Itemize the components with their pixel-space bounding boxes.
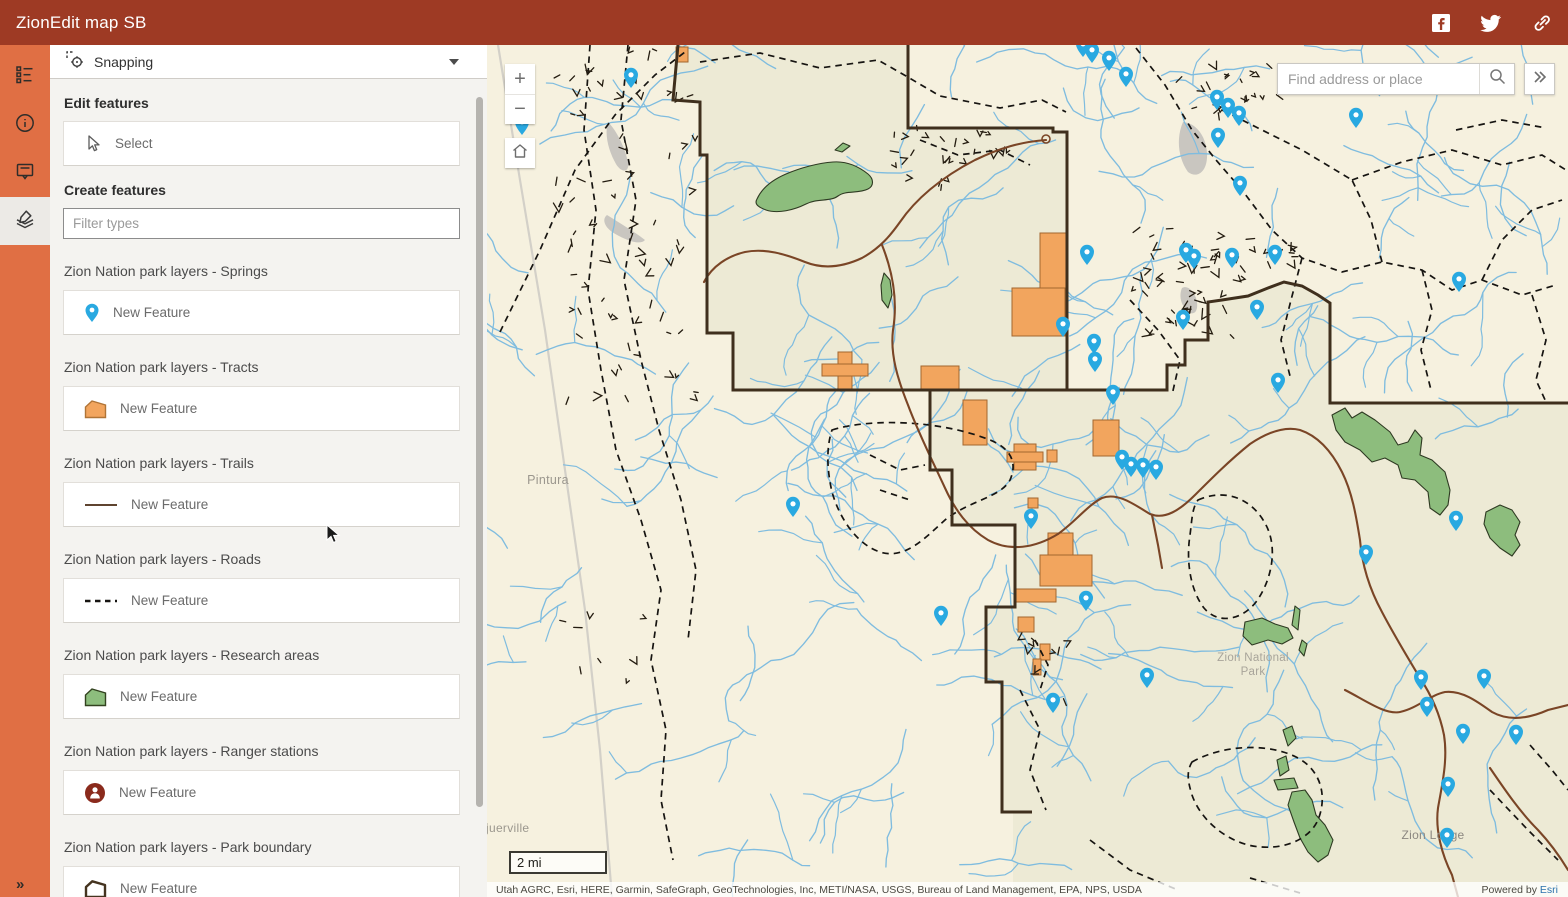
new-feature-label: New Feature <box>113 305 190 320</box>
point-pin-icon <box>84 302 100 323</box>
home-icon <box>511 142 529 165</box>
new-feature-label: New Feature <box>131 497 208 512</box>
layer-section-title: Zion Nation park layers - Park boundary <box>64 839 473 855</box>
app-header: ZionEdit map SB <box>0 0 1568 45</box>
spring-pin[interactable] <box>786 497 800 517</box>
snapping-row[interactable]: Snapping <box>50 45 487 79</box>
spring-pin[interactable] <box>1087 334 1101 354</box>
spring-pin[interactable] <box>1176 310 1190 330</box>
layer-section-title: Zion Nation park layers - Research areas <box>64 647 473 663</box>
sidebar-item-edit[interactable] <box>0 197 50 245</box>
spring-pin[interactable] <box>1119 67 1133 87</box>
spring-pin[interactable] <box>1088 352 1102 372</box>
search-button[interactable] <box>1479 64 1514 94</box>
new-feature-button[interactable]: New Feature <box>63 866 460 897</box>
facebook-icon[interactable] <box>1432 14 1450 32</box>
select-button[interactable]: Select <box>63 121 460 166</box>
header-social-icons <box>1432 13 1552 33</box>
point-ranger-icon <box>84 782 106 804</box>
editor-panel: Snapping Edit features Select Create fea… <box>50 45 487 897</box>
create-features-list: Zion Nation park layers - SpringsNew Fea… <box>50 263 487 897</box>
share-link-icon[interactable] <box>1532 13 1552 33</box>
new-feature-label: New Feature <box>120 881 197 896</box>
info-icon <box>14 112 36 139</box>
layer-section: Zion Nation park layers - Park boundaryN… <box>50 839 487 897</box>
layer-section-title: Zion Nation park layers - Roads <box>64 551 473 567</box>
home-button[interactable] <box>505 138 535 168</box>
new-feature-label: New Feature <box>120 689 197 704</box>
line-dashed-icon <box>84 591 118 611</box>
spring-pin[interactable] <box>1225 248 1239 268</box>
zoom-out-button[interactable]: − <box>505 94 535 124</box>
snapping-label: Snapping <box>94 54 439 70</box>
line-solid-icon <box>84 495 118 515</box>
search-icon <box>1489 68 1506 90</box>
map-place-label: Park <box>1241 666 1266 678</box>
double-chevron-right-icon <box>1532 70 1548 89</box>
app: ZionEdit map SB <box>0 0 1568 897</box>
layer-section: Zion Nation park layers - Ranger station… <box>50 743 487 815</box>
app-title: ZionEdit map SB <box>16 13 147 33</box>
create-features-heading: Create features <box>64 182 473 198</box>
filter-types-input[interactable] <box>63 208 460 239</box>
map-view[interactable]: PinturajuervilleZion NationalParkZion Lo… <box>487 45 1568 897</box>
chevron-down-icon[interactable] <box>449 59 459 65</box>
select-button-label: Select <box>115 136 153 151</box>
select-cursor-icon <box>84 134 102 153</box>
map-attribution: Utah AGRC, Esri, HERE, Garmin, SafeGraph… <box>487 882 1568 897</box>
twitter-icon[interactable] <box>1480 14 1502 32</box>
search-input[interactable] <box>1278 64 1479 94</box>
new-feature-button[interactable]: New Feature <box>63 386 460 431</box>
search-expand-button[interactable] <box>1524 63 1555 95</box>
spring-pin[interactable] <box>1085 45 1099 63</box>
new-feature-button[interactable]: New Feature <box>63 674 460 719</box>
legend-icon <box>14 64 36 91</box>
polygon-outline-icon <box>84 879 107 897</box>
search-bar <box>1277 63 1515 95</box>
spring-pin[interactable] <box>1233 176 1247 196</box>
sidebar-item-info[interactable] <box>0 101 50 149</box>
new-feature-label: New Feature <box>120 401 197 416</box>
spring-pin[interactable] <box>624 68 638 88</box>
layer-section: Zion Nation park layers - Research areas… <box>50 647 487 719</box>
map-place-label: Pintura <box>527 473 569 487</box>
zoom-in-button[interactable]: + <box>505 64 535 94</box>
layer-section-title: Zion Nation park layers - Tracts <box>64 359 473 375</box>
left-toolbar: » <box>0 45 50 897</box>
layer-section: Zion Nation park layers - TractsNew Feat… <box>50 359 487 431</box>
zoom-controls: + − <box>505 64 535 124</box>
basemap[interactable]: PinturajuervilleZion NationalParkZion Lo… <box>487 45 1568 897</box>
spring-pin[interactable] <box>1080 245 1094 265</box>
layer-section-title: Zion Nation park layers - Springs <box>64 263 473 279</box>
new-feature-button[interactable]: New Feature <box>63 290 460 335</box>
new-feature-label: New Feature <box>119 785 196 800</box>
sidebar-item-legend[interactable] <box>0 53 50 101</box>
scale-bar: 2 mi <box>509 851 607 874</box>
new-feature-button[interactable]: New Feature <box>63 578 460 623</box>
new-feature-button[interactable]: New Feature <box>63 770 460 815</box>
collapse-panel-button[interactable]: » <box>0 871 50 897</box>
edit-features-heading: Edit features <box>64 95 473 111</box>
sidebar-item-popup[interactable] <box>0 149 50 197</box>
layer-section-title: Zion Nation park layers - Trails <box>64 455 473 471</box>
spring-pin[interactable] <box>1349 108 1363 128</box>
spring-pin[interactable] <box>1268 245 1282 265</box>
attribution-text: Utah AGRC, Esri, HERE, Garmin, SafeGraph… <box>496 884 1142 896</box>
layer-section: Zion Nation park layers - SpringsNew Fea… <box>50 263 487 335</box>
popup-icon <box>14 160 36 187</box>
spring-pin[interactable] <box>1211 128 1225 148</box>
map-place-label: Zion Lodge <box>1401 828 1464 842</box>
panel-scrollbar-thumb[interactable] <box>476 97 483 807</box>
new-feature-button[interactable]: New Feature <box>63 482 460 527</box>
edit-icon <box>14 208 36 235</box>
map-place-label: Zion National <box>1217 652 1289 664</box>
layer-section: Zion Nation park layers - RoadsNew Featu… <box>50 551 487 623</box>
layer-section: Zion Nation park layers - TrailsNew Feat… <box>50 455 487 527</box>
spring-pin[interactable] <box>1232 106 1246 126</box>
layer-section-title: Zion Nation park layers - Ranger station… <box>64 743 473 759</box>
snapping-icon <box>64 49 84 74</box>
polygon-green-icon <box>84 687 107 707</box>
map-place-label: juerville <box>487 821 529 835</box>
polygon-orange-icon <box>84 399 107 419</box>
new-feature-label: New Feature <box>131 593 208 608</box>
spring-pin[interactable] <box>934 606 948 626</box>
powered-by: Powered by Esri <box>1482 884 1558 896</box>
panel-scrollbar[interactable] <box>476 45 483 897</box>
esri-link[interactable]: Esri <box>1540 884 1558 896</box>
